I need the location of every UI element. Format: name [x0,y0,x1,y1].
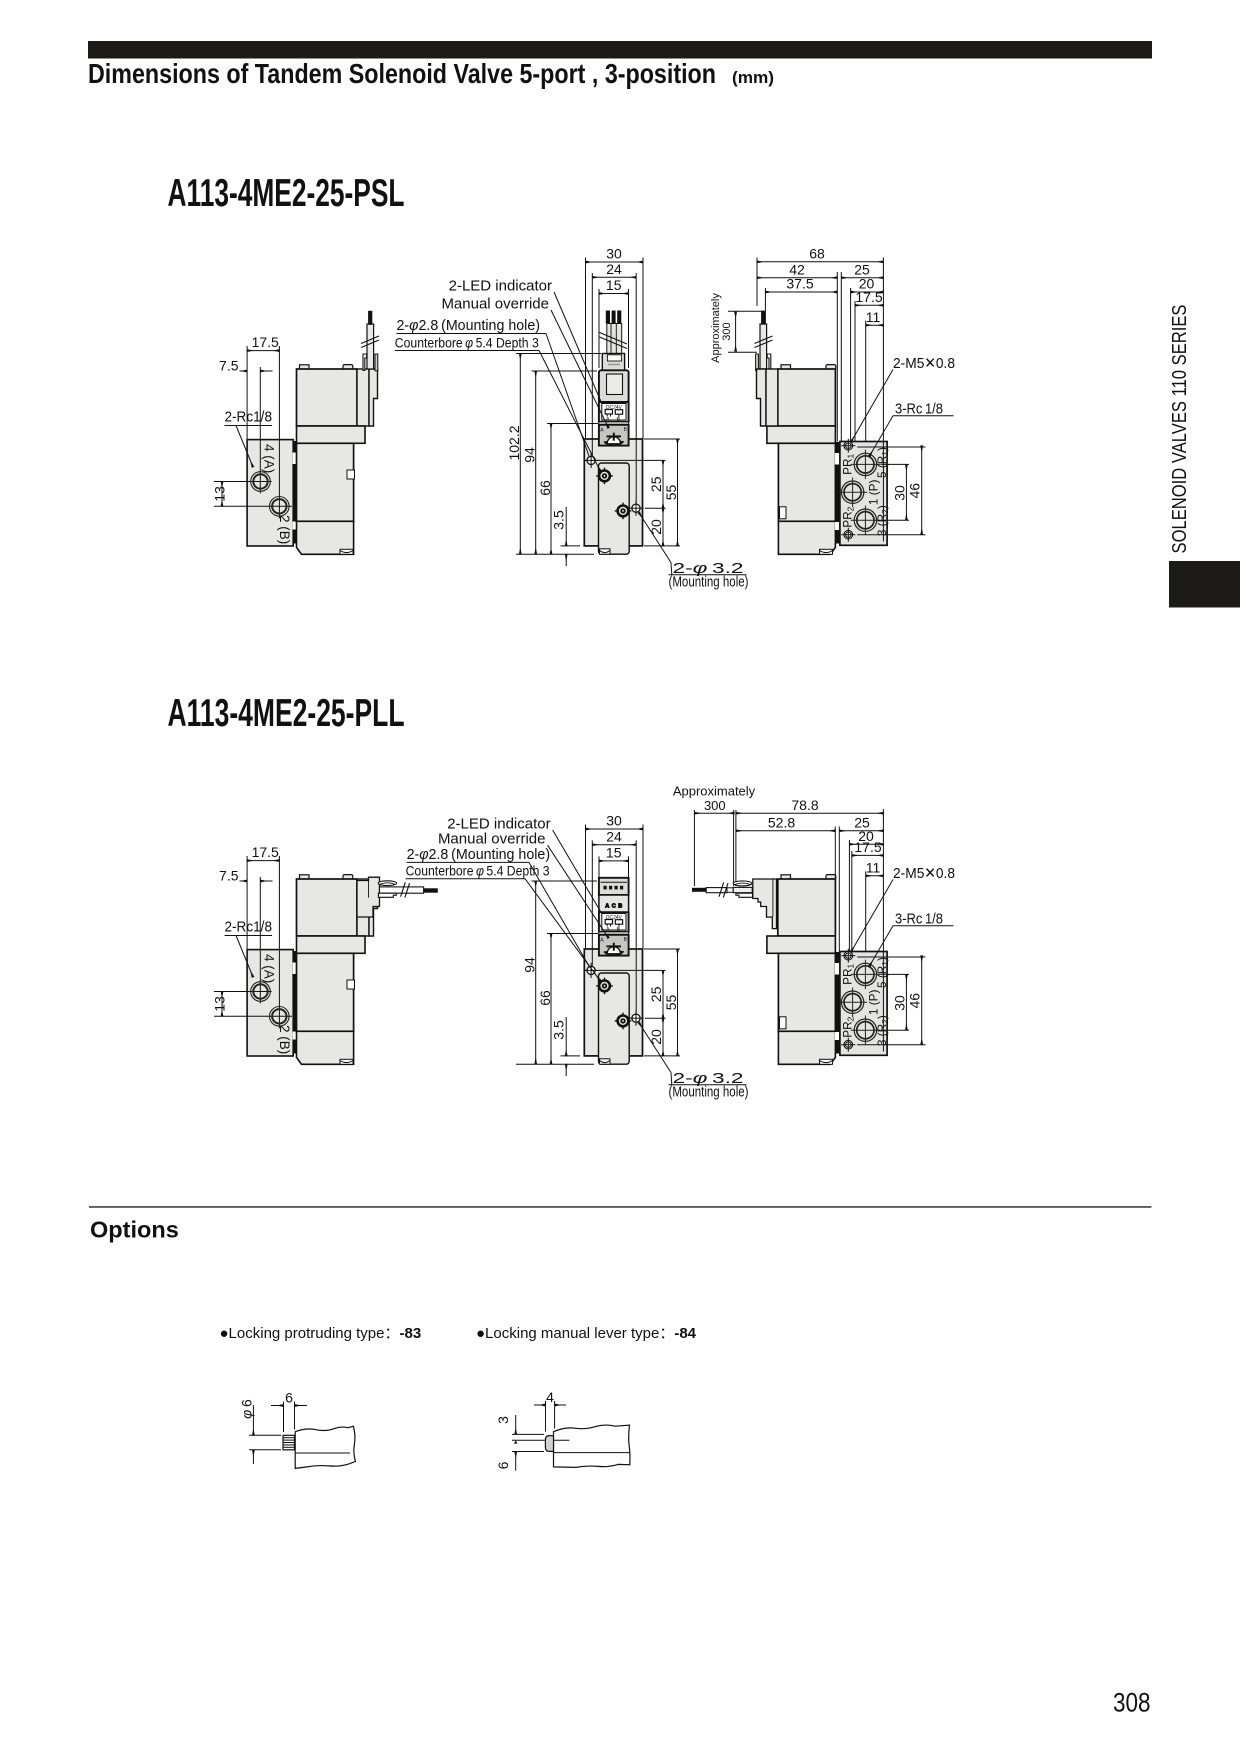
svg-text:68: 68 [809,246,825,262]
svg-text:2-LED indicator: 2-LED indicator [449,278,552,295]
svg-text:2-φ2.8 (Mounting hole): 2-φ2.8 (Mounting hole) [407,846,551,863]
svg-text:●Locking manual lever type：-84: ●Locking manual lever type：-84 [476,1325,697,1342]
svg-text:24: 24 [606,261,622,277]
svg-text:(mm): (mm) [732,69,774,87]
svg-text:Dimensions of Tandem Solenoid: Dimensions of Tandem Solenoid Valve 5-po… [88,58,716,89]
svg-text:φ 6: φ 6 [239,1399,255,1419]
svg-text:37.5: 37.5 [786,276,813,292]
svg-text:A113-4ME2-25-PLL: A113-4ME2-25-PLL [168,692,405,735]
svg-text:4: 4 [546,1389,554,1405]
svg-text:24: 24 [606,828,622,844]
svg-text:66: 66 [537,480,553,496]
svg-text:15: 15 [606,845,622,861]
svg-text:Counterbore φ 5.4 Depth 3: Counterbore φ 5.4 Depth 3 [395,335,539,351]
svg-text:3: 3 [495,1416,511,1424]
svg-text:1 (P): 1 (P) [866,479,880,505]
svg-text:6: 6 [285,1390,293,1406]
svg-text:A C B: A C B [605,904,622,910]
svg-text:Manual override: Manual override [441,296,549,313]
svg-text:5 (R1): 5 (R1) [875,447,890,478]
svg-text:46: 46 [907,483,923,499]
svg-text:25: 25 [648,476,664,492]
svg-text:Approximately: Approximately [673,783,756,798]
svg-text:308: 308 [1113,1688,1151,1718]
svg-text:300: 300 [721,322,733,340]
svg-text:17.5: 17.5 [252,334,279,350]
svg-text:17.5: 17.5 [855,289,882,305]
svg-text:2-M5✕0.8: 2-M5✕0.8 [893,355,955,372]
svg-text:78.8: 78.8 [791,797,818,813]
svg-text:3-Rc 1/8: 3-Rc 1/8 [895,401,943,418]
svg-text:20: 20 [648,519,664,535]
svg-text:7.5: 7.5 [219,358,239,374]
svg-text:15: 15 [606,277,622,293]
svg-text:55: 55 [663,485,679,501]
svg-text:2 (B): 2 (B) [277,515,292,544]
svg-text:52.8: 52.8 [768,815,795,831]
svg-text:●Locking protruding type：-83: ●Locking protruding type：-83 [220,1325,422,1342]
svg-text:30: 30 [891,485,907,501]
svg-text:SOLENOID VALVES 110 SERIES: SOLENOID VALVES 110 SERIES [1169,305,1191,554]
svg-text:2-Rc1/8: 2-Rc1/8 [225,410,273,426]
svg-text:Counterbore φ 5.4 Depth 3: Counterbore φ 5.4 Depth 3 [406,863,550,879]
svg-text:102.2: 102.2 [506,425,522,460]
svg-text:94: 94 [521,447,537,463]
svg-text:17.5: 17.5 [854,839,881,855]
svg-text:300: 300 [704,798,726,813]
svg-text:4 (A): 4 (A) [262,444,277,473]
svg-text:(Mounting hole): (Mounting hole) [669,574,749,591]
svg-text:30: 30 [606,246,622,262]
svg-text:Options: Options [90,1217,179,1243]
svg-text:11: 11 [866,860,881,876]
svg-text:11: 11 [866,309,881,325]
svg-text:13: 13 [211,486,227,502]
svg-text:A113-4ME2-25-PSL: A113-4ME2-25-PSL [168,172,405,215]
svg-text:6: 6 [495,1461,511,1469]
svg-text:2-φ2.8 (Mounting hole): 2-φ2.8 (Mounting hole) [397,317,541,334]
svg-text:30: 30 [606,813,622,829]
svg-text:3.5: 3.5 [550,510,566,530]
